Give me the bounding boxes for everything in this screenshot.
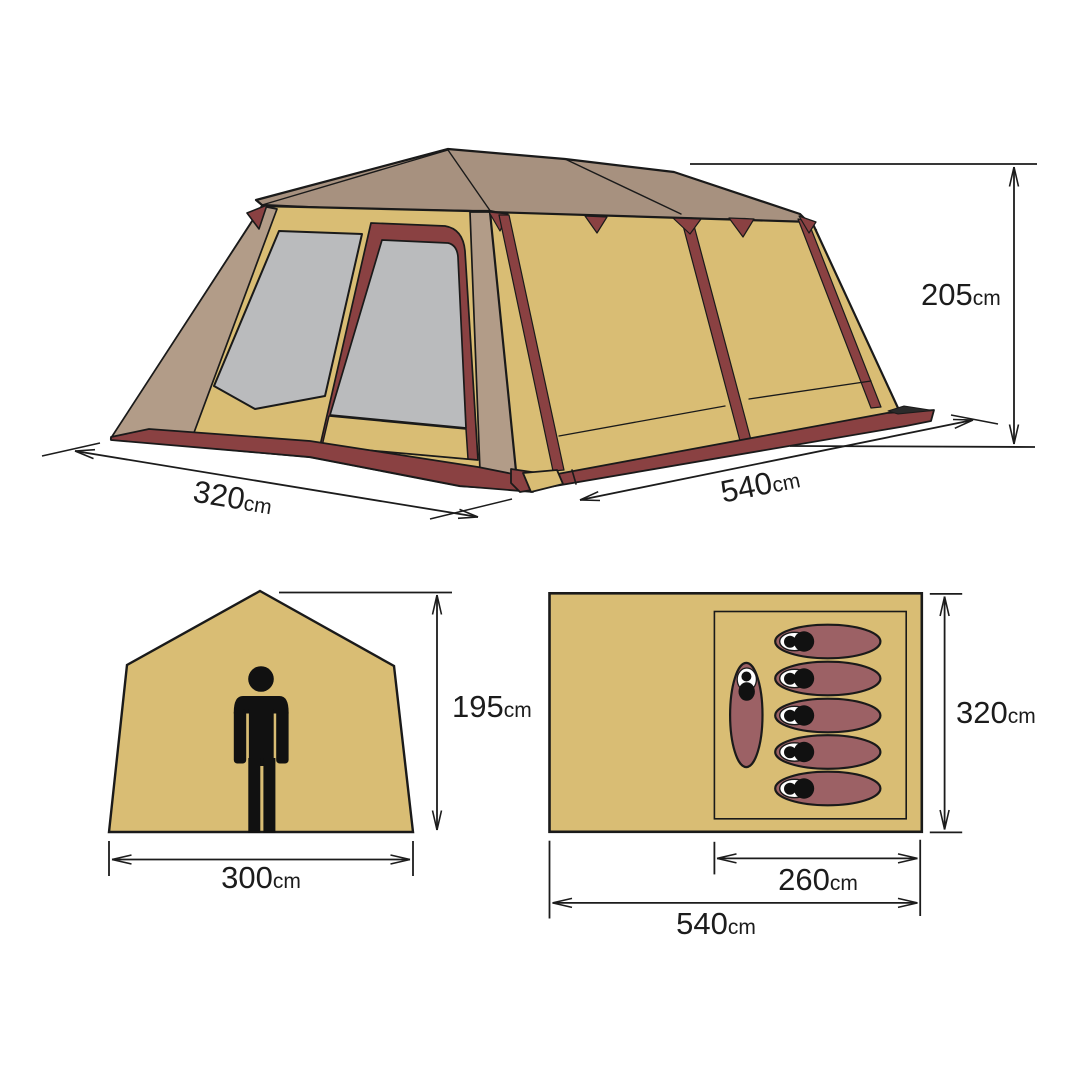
svg-text:300cm: 300cm: [221, 860, 301, 895]
svg-text:195cm: 195cm: [452, 689, 532, 724]
svg-text:260cm: 260cm: [778, 862, 858, 897]
svg-text:540cm: 540cm: [718, 459, 803, 509]
svg-text:320cm: 320cm: [956, 695, 1036, 730]
svg-text:205cm: 205cm: [921, 277, 1001, 312]
svg-text:540cm: 540cm: [676, 906, 756, 941]
